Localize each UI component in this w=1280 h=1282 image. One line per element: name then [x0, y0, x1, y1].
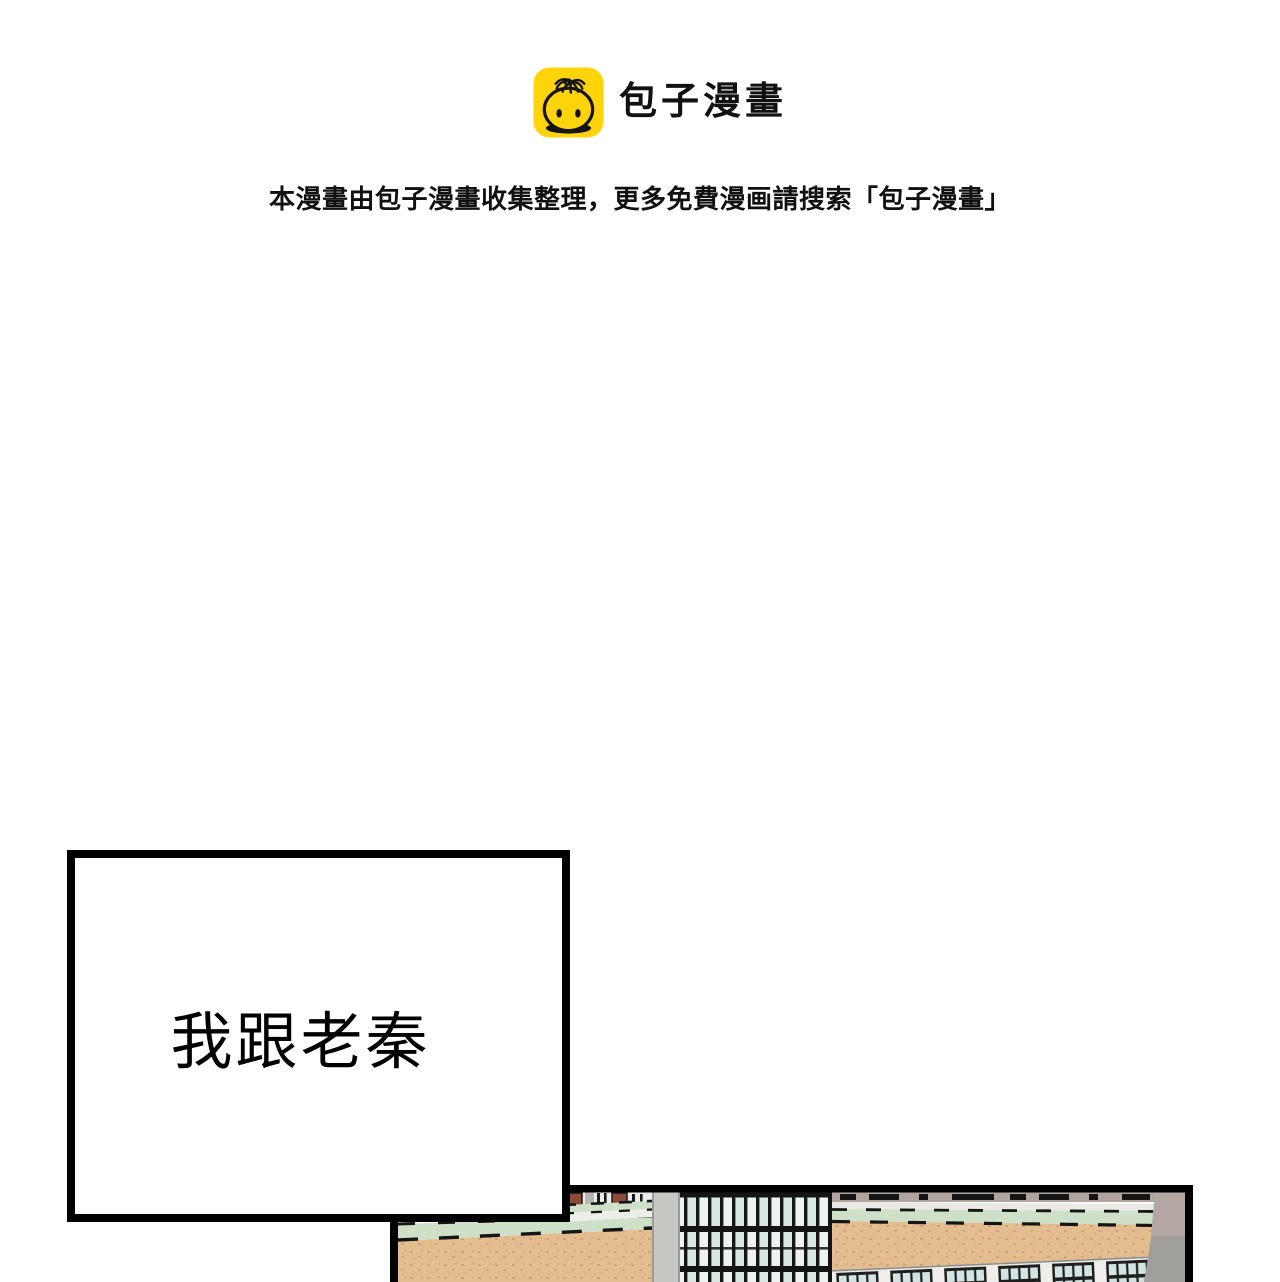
logo-title: 包子漫畫 — [619, 67, 787, 138]
logo: 包子漫畫 — [533, 67, 787, 138]
right-wing — [832, 1192, 1162, 1282]
speech-bubble-text: 我跟老秦 — [170, 991, 430, 1081]
glass-tower — [680, 1192, 832, 1282]
speech-bubble: 我跟老秦 — [67, 850, 570, 1222]
brick-wall-left — [398, 1216, 652, 1282]
notice-text: 本漫畫由包子漫畫收集整理，更多免費漫画請搜索「包子漫畫」 — [0, 179, 1280, 216]
corner-wall — [652, 1192, 680, 1282]
baozi-logo-icon — [533, 67, 604, 138]
roof-structures — [563, 1192, 652, 1222]
